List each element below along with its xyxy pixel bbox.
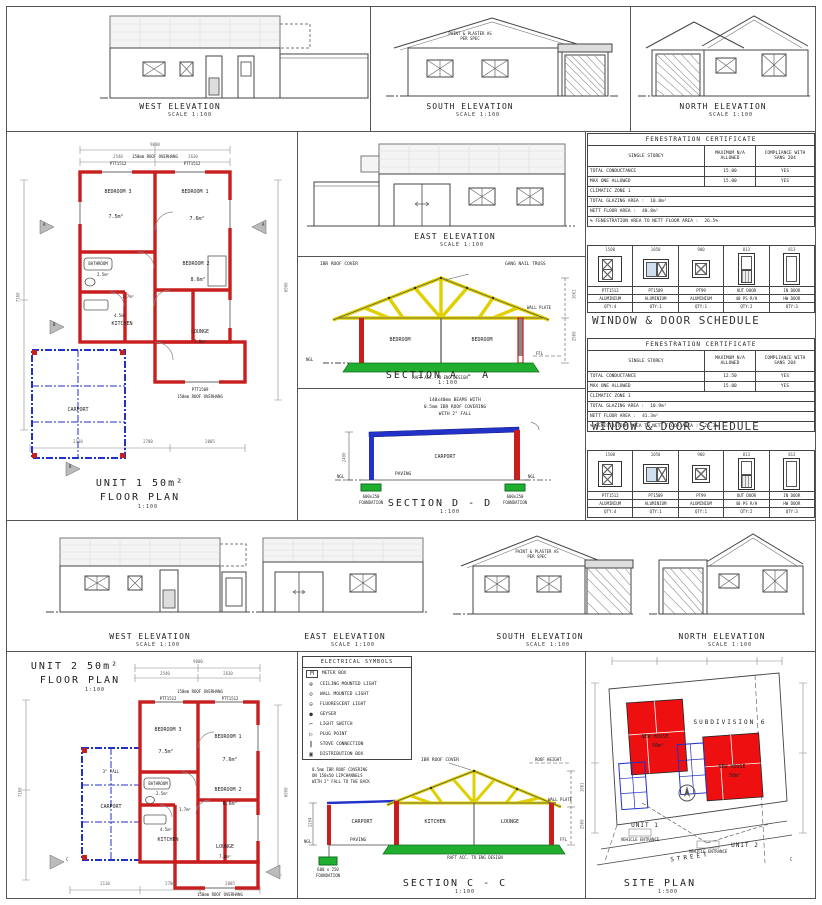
plan-overhang-note: 150mm ROOF OVERHANG (132, 155, 178, 160)
dim-label: 1061 (581, 782, 586, 792)
dim-label: 2110 (73, 440, 83, 445)
legend-label: WALL MOUNTED LIGHT (320, 692, 369, 697)
room-label: BEDROOM 1 (181, 190, 208, 196)
schedule-code: PT1509 (633, 491, 677, 499)
unit2-south-elevation-drawing (445, 528, 640, 618)
cert-zone: CLIMATIC ZONE 1 (588, 392, 814, 402)
cert-zone: CLIMATIC ZONE 1 (588, 187, 814, 197)
cert-row-compliance: YES (756, 177, 814, 186)
section-cc-covering-note: 0.5mm IBR ROOF COVERING (312, 768, 367, 773)
unit1-plan-scale: 1:100 (138, 505, 158, 511)
section-aa-scale: 1:100 (438, 381, 458, 387)
unit2-east-elevation-drawing (255, 532, 430, 617)
cert-glazing-value: 10.8m² (650, 199, 666, 204)
dim-label: 2630 (188, 155, 198, 160)
schedule-qty: QTY:1 (679, 507, 723, 515)
unit2-south-elevation-note: PAINT & PLASTER AS PER SPEC (515, 550, 559, 559)
window-glyph (692, 260, 710, 278)
room-area: 7.6m² (222, 758, 237, 764)
unit1-north-elevation-title: NORTH ELEVATION (679, 102, 766, 111)
site-unit1-label: UNIT 1 (631, 823, 659, 830)
fluorescent-light-icon: ⊖ (306, 701, 316, 708)
wall-right-red (549, 803, 554, 845)
schedule-column: 813 IN DOOR HW DOOR QTY:3 (770, 451, 814, 517)
room-label: BEDROOM 3 (154, 728, 181, 734)
plan-window-code: PTT1512 (110, 162, 127, 167)
door-glyph (738, 253, 755, 285)
section-dd-title: SECTION D - D (388, 498, 492, 510)
schedule-column: 813 IN DOOR HW DOOR QTY:3 (770, 246, 814, 312)
stove-connection-icon: ‖ (306, 741, 316, 748)
section-marker-label: B (53, 323, 55, 328)
room-area: 2.5m² (97, 273, 109, 278)
section-cc-roof-note: IBR ROOF COVER (421, 758, 459, 763)
section-dd-room: CARPORT (434, 455, 455, 461)
site-house2-area: 50m² (729, 774, 741, 780)
geyser-icon: ● (306, 711, 316, 718)
room-label: KITCHEN (111, 322, 132, 328)
cert-row-value: 15.00 (705, 167, 756, 176)
carport-post-red (327, 805, 331, 845)
schedule-qty: QTY:1 (679, 302, 723, 310)
unit1-floor-plan-drawing (10, 140, 295, 470)
wall-light-icon: ⊙ (306, 691, 316, 698)
truss-yellow (333, 278, 549, 320)
section-dd-beam-note: 0.5mm IBR ROOF COVERING (424, 405, 486, 410)
room-label: BEDROOM 2 (214, 788, 241, 794)
dim-label: 6000 (285, 787, 290, 797)
window-glyph (692, 465, 710, 483)
schedule-qty: QTY:2 (724, 302, 768, 310)
wall-left (359, 318, 364, 363)
site-house1-label: NEW HOUSE (641, 735, 668, 741)
divider (297, 388, 585, 389)
site-house1-area: 50m² (652, 744, 664, 750)
cert-glazing-value: 10.9m² (650, 404, 666, 409)
section-cc-room: CARPORT (351, 820, 372, 826)
legend-label: GEYSER (320, 712, 336, 717)
section-aa-room: BEDROOM (471, 338, 492, 344)
room-area: 7.0m² (219, 855, 231, 860)
unit1-plan-subtitle: FLOOR PLAN (100, 492, 180, 504)
schedule-material: ALUMINIUM (588, 294, 632, 302)
divider (297, 651, 298, 899)
door-glyph (783, 458, 800, 490)
unit2-south-elevation-scale: SCALE 1:100 (526, 643, 570, 649)
room-label: BEDROOM 2 (182, 262, 209, 268)
section-marker-label: C (66, 858, 68, 863)
site-subdivision-label: SUBDIVISION 6 (694, 720, 767, 727)
schedule-qty: QTY:3 (770, 507, 814, 515)
schedule-column: 1050 PT1509 ALUMINIUM QTY:1 (633, 451, 678, 517)
electrical-symbols-legend: ELECTRICAL SYMBOLS MMETER BOX ⊕CEILING M… (302, 656, 412, 760)
beam-blue (369, 427, 519, 437)
legend-label: STOVE CONNECTION (320, 742, 363, 747)
schedule-qty: QTY:4 (588, 302, 632, 310)
cert-col-header: COMPLIANCE WITH SANS 204 (756, 351, 814, 371)
legend-item: ‖STOVE CONNECTION (303, 739, 411, 749)
divider (585, 651, 586, 899)
cert-glazing-label: TOTAL GLAZING AREA : (590, 404, 644, 409)
unit2-north-elevation-title: NORTH ELEVATION (678, 632, 765, 641)
post-right-red (514, 430, 520, 480)
dim-label: 2630 (223, 672, 233, 677)
divider (6, 651, 816, 652)
section-cc-covering-note: WITH 2° FALL TO THE BACK (312, 780, 370, 785)
legend-label: PLUG POINT (320, 732, 347, 737)
foundation-right (505, 484, 525, 491)
window-glyph (643, 259, 669, 279)
schedule-material: HW DOOR (770, 499, 814, 507)
section-cc-wallplate-note: WALL PLATE (548, 798, 572, 803)
plan-overhang-note: 150mm ROOF OVERHANG (177, 690, 223, 695)
cert-floor-value: 40.8m² (642, 209, 658, 214)
foundation-label: FOUNDATION (503, 501, 527, 506)
site-dimension-lines (591, 657, 807, 833)
section-dd-scale: 1:100 (440, 510, 460, 516)
section-cc-room: LOUNGE (501, 820, 519, 826)
cert-col-header: MAXIMUM N/A ALLOWED (705, 351, 756, 371)
section-dd-beam-note: 140x40mm BEAMS WITH (429, 398, 480, 403)
legend-label: METER BOX (322, 671, 346, 676)
cert-row-label: TOTAL CONDUCTANCE (588, 372, 705, 381)
unit2-north-elevation-drawing (645, 528, 810, 618)
room-label: BEDROOM 1 (214, 735, 241, 741)
unit1-south-elevation-note: PAINT & PLASTER AS PER SPEC (447, 32, 493, 41)
unit1-east-elevation-title: EAST ELEVATION (414, 232, 495, 241)
foundation-green (319, 857, 337, 865)
legend-item: ●GEYSER (303, 709, 411, 719)
unit2-floor-plan-drawing (10, 660, 295, 895)
divider (630, 6, 631, 131)
legend-item: ⊙WALL MOUNTED LIGHT (303, 689, 411, 699)
room-label: BATHROOM (148, 782, 167, 787)
section-aa-wallplate-note: WALL PLATE (527, 306, 551, 311)
ngl-label: NGL (528, 475, 535, 480)
unit1-north-elevation-drawing (632, 10, 814, 98)
cert-row-compliance: YES (756, 167, 814, 176)
foundation-label: 600 x 250 (317, 868, 339, 873)
unit1-east-elevation-drawing (299, 138, 583, 230)
schedule-qty: QTY:4 (588, 507, 632, 515)
schedule-code: IN DOOR (770, 491, 814, 499)
cert-floor-label: NETT FLOOR AREA : (590, 414, 636, 419)
room-area: 8.6m² (222, 802, 237, 808)
divider (297, 256, 585, 257)
section-dd-beam-note: WITH 2° FALL (439, 412, 472, 417)
window-glyph (598, 461, 622, 487)
plan-window-code: PTT1509 (192, 388, 209, 393)
cert-row-compliance: YES (756, 382, 814, 391)
cert-row-value: 15.00 (705, 382, 756, 391)
plug-point-icon: ▷ (306, 731, 316, 738)
dim-label: 1061 (573, 289, 578, 299)
unit1-west-elevation-scale: SCALE 1:100 (168, 113, 212, 119)
schedule-material: ALUMINIUM (633, 499, 677, 507)
section-aa-roof-note: IBR ROOF COVER (320, 262, 358, 267)
room-area: 7.6m² (189, 217, 204, 223)
ffl-label: FFL (560, 838, 567, 843)
divider (6, 131, 816, 132)
legend-item: ⊕CEILING MOUNTED LIGHT (303, 679, 411, 689)
cert-row-value: 15.00 (705, 177, 756, 186)
site-entrance-label: VEHICLE ENTRANCE (621, 838, 660, 843)
schedule-code: PT99 (679, 491, 723, 499)
cert-floor-label: NETT FLOOR AREA : (590, 209, 636, 214)
section-cc-raft-note: RAFT ACC. TO ENG DESIGN (447, 856, 502, 861)
legend-item: MMETER BOX (303, 668, 411, 679)
cert-floor-value: 41.3m² (642, 414, 658, 419)
schedule-1-title: WINDOW & DOOR SCHEDULE (592, 315, 760, 328)
ngl-label: NGL (306, 358, 313, 363)
schedule-column: 900 PT99 ALUMINIUM QTY:1 (679, 451, 724, 517)
room-area: 4.5m² (114, 314, 126, 319)
unit1-plan-title: UNIT 1 50m² (96, 478, 184, 490)
divider (297, 131, 298, 520)
legend-item: ▷PLUG POINT (303, 729, 411, 739)
room-area: 8.6m² (190, 278, 205, 284)
unit1-west-elevation-title: WEST ELEVATION (139, 102, 220, 111)
schedule-column: 1050 PT1509 ALUMINIUM QTY:1 (633, 246, 678, 312)
unit1-north-elevation-scale: SCALE 1:100 (709, 113, 753, 119)
carport-fall-note: 3° FALL (103, 770, 120, 775)
window-glyph (598, 256, 622, 282)
dim-label: 2540 (160, 672, 170, 677)
legend-label: DISTRIBUTION BOX (320, 752, 363, 757)
schedule-column: 900 PT99 ALUMINIUM QTY:1 (679, 246, 724, 312)
ngl-label: NGL (337, 475, 344, 480)
schedule-qty: QTY:3 (770, 302, 814, 310)
section-cc-title: SECTION C - C (403, 878, 507, 890)
cert-row-label: MAX ONE ALLOWED (588, 177, 705, 186)
room-area: 1.7m² (179, 808, 191, 813)
dim-label: 6000 (285, 282, 290, 292)
light-switch-icon: ⌐ (306, 721, 316, 728)
plan-window-code: PTT1512 (160, 697, 177, 702)
post-left-blue (369, 435, 374, 480)
room-area: 1.7m² (122, 295, 134, 300)
dim-label: 9000 (150, 143, 160, 148)
unit1-west-elevation-drawing (10, 10, 366, 105)
foundation-label: 600x250 (507, 495, 524, 500)
schedule-code: OUT DOOR (724, 286, 768, 294)
schedule-material: ALUMINIUM (588, 499, 632, 507)
cert-pct-label: % FENESTRATION AREA TO NETT FLOOR AREA : (590, 219, 698, 224)
room-label: BEDROOM 3 (104, 190, 131, 196)
schedule-material: 40 PS R/H (724, 499, 768, 507)
section-marker-label: A (43, 223, 45, 228)
dim-label: 7160 (19, 787, 24, 797)
dim-label: 7160 (17, 292, 22, 302)
section-cc-covering-note: ON 150x50 LIPCHANNELS (312, 774, 363, 779)
plan-window-code: PTT1512 (184, 162, 201, 167)
section-aa-truss-note: GANG NAIL TRUSS (505, 262, 546, 267)
cert-col-header: SINGLE STOREY (588, 351, 705, 371)
wall-left-red (394, 801, 399, 845)
door-glyph (738, 458, 755, 490)
schedule-column: 1500 PTT1512 ALUMINIUM QTY:4 (588, 246, 633, 312)
schedule-material: ALUMINIUM (679, 499, 723, 507)
cert-row-label: MAX ONE ALLOWED (588, 382, 705, 391)
schedule-material: ALUMINIUM (633, 294, 677, 302)
section-cc-paving: PAVING (350, 838, 366, 843)
site-house2-label: NEW HOUSE (718, 765, 745, 771)
cert-row-label: TOTAL CONDUCTANCE (588, 167, 705, 176)
schedule-material: 40 PS R/H (724, 294, 768, 302)
door-glyph (783, 253, 800, 285)
window-glyph (643, 464, 669, 484)
schedule-code: PT1509 (633, 286, 677, 294)
window-door-schedule-2: 1500 PTT1512 ALUMINIUM QTY:4 1050 PT1509… (587, 450, 815, 518)
schedule-code: PTT1512 (588, 491, 632, 499)
dim-label: 2540 (113, 155, 123, 160)
schedule-material: HW DOOR (770, 294, 814, 302)
schedule-column: 813 OUT DOOR 40 PS R/H QTY:2 (724, 246, 769, 312)
room-label: CARPORT (100, 805, 121, 811)
site-house-1 (615, 699, 690, 809)
section-marker-label: D (69, 465, 71, 470)
foundation-label: FOUNDATION (359, 501, 383, 506)
unit2-west-elevation-title: WEST ELEVATION (109, 632, 190, 641)
room-area: 4.5m² (160, 828, 172, 833)
cert-col-header: COMPLIANCE WITH SANS 204 (756, 146, 814, 166)
legend-item: ⊖FLUORESCENT LIGHT (303, 699, 411, 709)
room-label: CARPORT (67, 408, 88, 414)
cert-col-header: MAXIMUM N/A ALLOWED (705, 146, 756, 166)
schedule-code: PTT1512 (588, 286, 632, 294)
divider (370, 6, 371, 131)
plan-section-markers (40, 220, 266, 476)
window-door-schedule-1: 1500 PTT1512 ALUMINIUM QTY:4 1050 PT1509… (587, 245, 815, 313)
unit2-east-elevation-title: EAST ELEVATION (304, 632, 385, 641)
plan-overhang-note: 150mm ROOF OVERHANG (177, 395, 223, 400)
schedule-code: IN DOOR (770, 286, 814, 294)
room-label: LOUNGE (216, 845, 234, 851)
ngl-label: NGL (304, 840, 311, 845)
dim-label: 2400 (343, 452, 348, 462)
unit2-north-elevation-scale: SCALE 1:100 (708, 643, 752, 649)
dim-label: 9000 (193, 660, 203, 665)
dim-label: 2110 (100, 882, 110, 887)
foundation-left (361, 484, 381, 491)
site-unit2-label: UNIT 2 (731, 843, 759, 850)
truss-yellow (387, 771, 561, 807)
dim-label: 2700 (165, 882, 175, 887)
legend-label: LIGHT SWITCH (320, 722, 353, 727)
cert-col-header: SINGLE STOREY (588, 146, 705, 166)
dim-label: 2560 (573, 331, 578, 341)
cert-glazing-label: TOTAL GLAZING AREA : (590, 199, 644, 204)
plan-door-swings (110, 212, 173, 360)
section-aa-room: BEDROOM (389, 338, 410, 344)
unit1-east-elevation-scale: SCALE 1:100 (440, 243, 484, 249)
divider (585, 131, 586, 520)
schedule-code: PT99 (679, 286, 723, 294)
meter-box-icon: M (306, 670, 318, 678)
room-label: LOUNGE (191, 330, 209, 336)
slab-green (383, 845, 565, 854)
section-dd-paving: PAVING (395, 472, 411, 477)
section-marker-label: A (262, 223, 264, 228)
schedule-column: 813 OUT DOOR 40 PS R/H QTY:2 (724, 451, 769, 517)
room-label: BATHROOM (88, 262, 107, 267)
site-plan-title: SITE PLAN (624, 878, 696, 890)
schedule-code: OUT DOOR (724, 491, 768, 499)
plan-dimension-lines (20, 146, 282, 452)
dim-label: 2005 (205, 440, 215, 445)
section-cc-scale: 1:100 (455, 890, 475, 896)
unit2-south-elevation-title: SOUTH ELEVATION (496, 632, 583, 641)
cert-row-compliance: YES (756, 372, 814, 381)
ffl-label: FFL (536, 352, 543, 357)
schedule-qty: QTY:2 (724, 507, 768, 515)
dim-label: 2204 (309, 817, 314, 827)
schedule-qty: QTY:1 (633, 507, 677, 515)
certificate-title: FENESTRATION CERTIFICATE (588, 339, 814, 351)
room-area: 7.5m² (108, 215, 123, 221)
plan-window-code: PTT1512 (222, 697, 239, 702)
dim-label: 2560 (581, 819, 586, 829)
unit2-west-elevation-drawing (40, 532, 270, 617)
unit2-west-elevation-scale: SCALE 1:100 (136, 643, 180, 649)
section-cc-roofheight-note: ROOF HEIGHT (535, 758, 562, 763)
schedule-material: ALUMINIUM (679, 294, 723, 302)
legend-item: ⌐LIGHT SWITCH (303, 719, 411, 729)
cert-pct-value: 26.5% (704, 219, 718, 224)
room-area: 7.0m² (194, 340, 206, 345)
fenestration-certificate-2: FENESTRATION CERTIFICATE SINGLE STOREY M… (587, 338, 815, 432)
foundation-label: FOUNDATION (316, 874, 340, 879)
schedule-2-title: WINDOW & DOOR SCHEDULE (592, 421, 760, 434)
schedule-qty: QTY:1 (633, 302, 677, 310)
divider (6, 520, 816, 521)
dim-label: 2700 (143, 440, 153, 445)
dim-label: 2005 (225, 882, 235, 887)
cert-row-value: 12.50 (705, 372, 756, 381)
room-area: 7.5m² (158, 750, 173, 756)
room-label: KITCHEN (157, 838, 178, 844)
unit1-south-elevation-title: SOUTH ELEVATION (426, 102, 513, 111)
schedule-column: 1500 PTT1512 ALUMINIUM QTY:4 (588, 451, 633, 517)
legend-label: FLUORESCENT LIGHT (320, 702, 366, 707)
section-cc-room: KITCHEN (424, 820, 445, 826)
ceiling-light-icon: ⊕ (306, 681, 316, 688)
fenestration-certificate-1: FENESTRATION CERTIFICATE SINGLE STOREY M… (587, 133, 815, 227)
unit1-south-elevation-drawing (372, 10, 628, 98)
architectural-drawing-sheet: WEST ELEVATION SCALE 1:100 PAINT & PLAST… (0, 0, 822, 905)
legend-label: CEILING MOUNTED LIGHT (320, 682, 377, 687)
foundation-label: 600x250 (363, 495, 380, 500)
room-area: 2.5m² (156, 792, 168, 797)
certificate-title: FENESTRATION CERTIFICATE (588, 134, 814, 146)
legend-title: ELECTRICAL SYMBOLS (303, 657, 411, 668)
unit1-south-elevation-scale: SCALE 1:100 (456, 113, 500, 119)
unit2-east-elevation-scale: SCALE 1:100 (331, 643, 375, 649)
site-plan-scale: 1:500 (658, 890, 678, 896)
plan-overhang-note: 150mm ROOF OVERHANG (197, 893, 243, 898)
